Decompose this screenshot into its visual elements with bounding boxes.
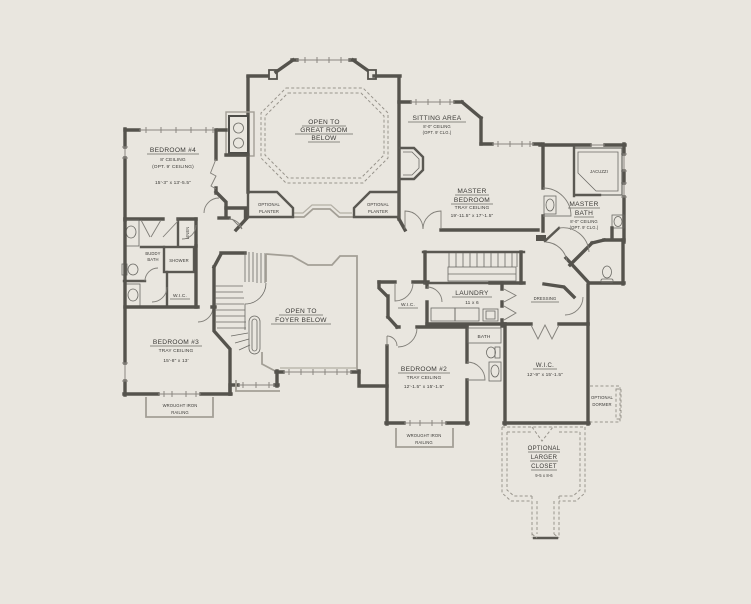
svg-text:OPTIONAL: OPTIONAL [528, 446, 561, 452]
svg-text:WROUGHT IRON: WROUGHT IRON [407, 433, 442, 438]
svg-text:BATH: BATH [575, 210, 593, 217]
svg-text:BATH: BATH [477, 334, 490, 340]
svg-text:MASTER: MASTER [569, 201, 598, 208]
svg-text:(OPT. 9' CEILING): (OPT. 9' CEILING) [152, 164, 194, 170]
svg-text:TRAY CEILING: TRAY CEILING [455, 205, 490, 211]
svg-text:TRAY CEILING: TRAY CEILING [407, 375, 442, 381]
svg-text:BATH: BATH [147, 257, 158, 262]
svg-text:BELOW: BELOW [311, 135, 337, 142]
svg-text:PLANTER: PLANTER [368, 209, 388, 214]
svg-text:BEDROOM #2: BEDROOM #2 [401, 366, 447, 373]
svg-text:BEDROOM #4: BEDROOM #4 [150, 147, 196, 154]
svg-text:LAUNDRY: LAUNDRY [455, 290, 489, 297]
svg-text:15'-8" x 13': 15'-8" x 13' [163, 358, 188, 364]
svg-text:OPEN TO: OPEN TO [308, 119, 340, 126]
svg-text:19'-11.5" x 17'-1.5": 19'-11.5" x 17'-1.5" [451, 213, 494, 219]
svg-text:BUDDY: BUDDY [145, 251, 160, 256]
svg-text:DORMER: DORMER [592, 402, 611, 407]
svg-text:DRESSING: DRESSING [534, 296, 557, 301]
svg-text:W.I.C.: W.I.C. [536, 363, 554, 369]
svg-text:8'-0" CEILING: 8'-0" CEILING [570, 219, 598, 224]
svg-text:OPTIONAL: OPTIONAL [591, 395, 614, 400]
svg-text:12'-1.5" x 15'-1.5": 12'-1.5" x 15'-1.5" [404, 384, 445, 390]
svg-text:SHOWER: SHOWER [169, 258, 188, 263]
svg-text:JACUZZI: JACUZZI [590, 169, 608, 174]
svg-text:MASTER: MASTER [457, 188, 486, 195]
svg-text:OPTIONAL: OPTIONAL [367, 202, 390, 207]
svg-text:8' CEILING: 8' CEILING [160, 157, 186, 163]
svg-text:BEDROOM: BEDROOM [454, 197, 490, 204]
svg-text:12'-9" x 15'-1.5": 12'-9" x 15'-1.5" [527, 372, 563, 378]
svg-text:W.I.C.: W.I.C. [173, 293, 187, 299]
svg-text:LARGER: LARGER [531, 455, 558, 461]
svg-text:PLANTER: PLANTER [259, 209, 279, 214]
svg-text:OPEN TO: OPEN TO [285, 308, 317, 315]
svg-text:8'-0" CEILING: 8'-0" CEILING [423, 124, 451, 129]
svg-text:SITTING AREA: SITTING AREA [412, 115, 461, 122]
svg-text:FOYER BELOW: FOYER BELOW [275, 317, 327, 324]
svg-text:RAILING: RAILING [415, 440, 432, 445]
svg-text:W.I.C.: W.I.C. [401, 302, 415, 308]
svg-text:WROUGHT IRON: WROUGHT IRON [163, 403, 198, 408]
svg-text:9-5 x 8-6: 9-5 x 8-6 [535, 473, 553, 478]
svg-text:11 x 6: 11 x 6 [465, 300, 479, 306]
svg-text:CLOSET: CLOSET [531, 464, 557, 470]
svg-text:TRAY CEILING: TRAY CEILING [159, 348, 194, 354]
svg-text:RAILING: RAILING [171, 410, 188, 415]
svg-text:GREAT ROOM: GREAT ROOM [300, 127, 347, 134]
svg-text:15'-3" x 13'-5.5": 15'-3" x 13'-5.5" [155, 180, 191, 186]
svg-text:BEDROOM #3: BEDROOM #3 [153, 339, 199, 346]
svg-text:OPTIONAL: OPTIONAL [258, 202, 281, 207]
svg-text:(OPT. 9' CLG.): (OPT. 9' CLG.) [423, 130, 452, 135]
svg-text:(OPT. 9' CLG.): (OPT. 9' CLG.) [570, 225, 599, 230]
